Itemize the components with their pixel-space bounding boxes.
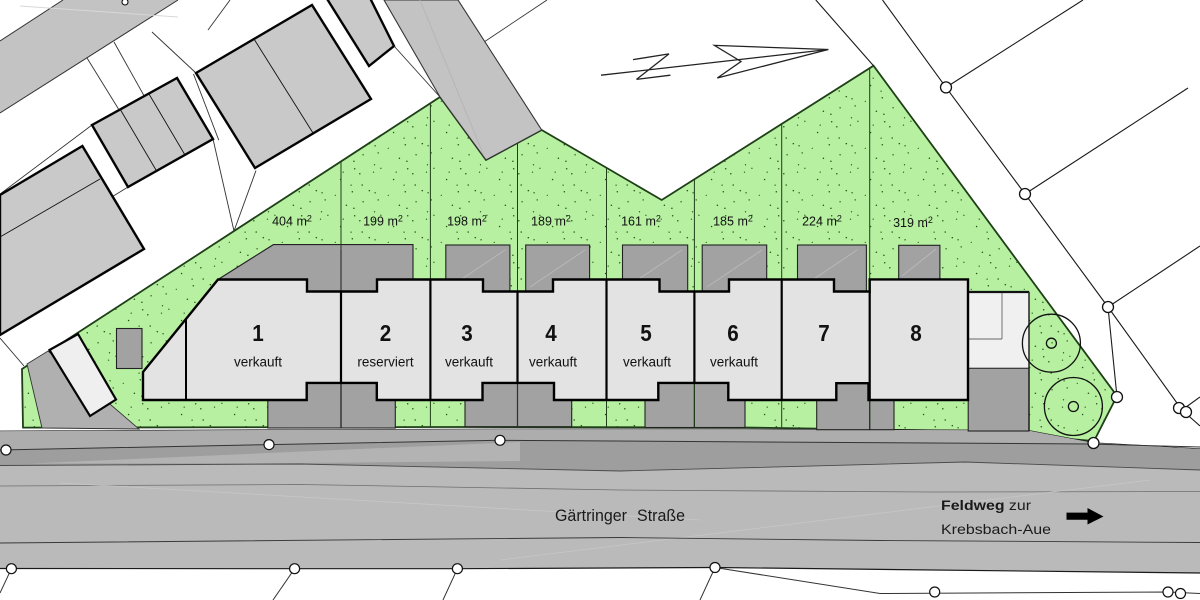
svg-text:189 m2: 189 m2 <box>531 214 571 229</box>
svg-text:5: 5 <box>640 320 652 346</box>
svg-text:reserviert: reserviert <box>357 355 414 370</box>
svg-text:Feldweg zur: Feldweg zur <box>941 498 1032 513</box>
svg-text:199 m2: 199 m2 <box>363 214 403 229</box>
svg-text:verkauft: verkauft <box>529 355 577 370</box>
svg-text:198 m2: 198 m2 <box>447 214 487 229</box>
svg-text:7: 7 <box>818 320 830 346</box>
svg-text:verkauft: verkauft <box>445 355 493 370</box>
svg-text:2: 2 <box>380 320 392 346</box>
svg-text:161 m2: 161 m2 <box>621 214 661 229</box>
svg-text:6: 6 <box>727 320 739 346</box>
svg-text:verkauft: verkauft <box>623 355 671 370</box>
svg-text:3: 3 <box>461 320 473 346</box>
svg-text:1: 1 <box>252 320 264 346</box>
svg-text:319 m2: 319 m2 <box>893 215 933 230</box>
svg-text:verkauft: verkauft <box>234 355 282 370</box>
svg-text:4: 4 <box>545 320 557 346</box>
svg-text:verkauft: verkauft <box>710 355 758 370</box>
svg-text:8: 8 <box>910 320 922 346</box>
svg-text:Krebsbach-Aue: Krebsbach-Aue <box>941 522 1051 537</box>
svg-text:404 m2: 404 m2 <box>272 214 312 229</box>
svg-text:Gärtringer Straße: Gärtringer Straße <box>555 506 685 525</box>
svg-text:224 m2: 224 m2 <box>802 214 842 229</box>
svg-text:185 m2: 185 m2 <box>713 214 753 229</box>
